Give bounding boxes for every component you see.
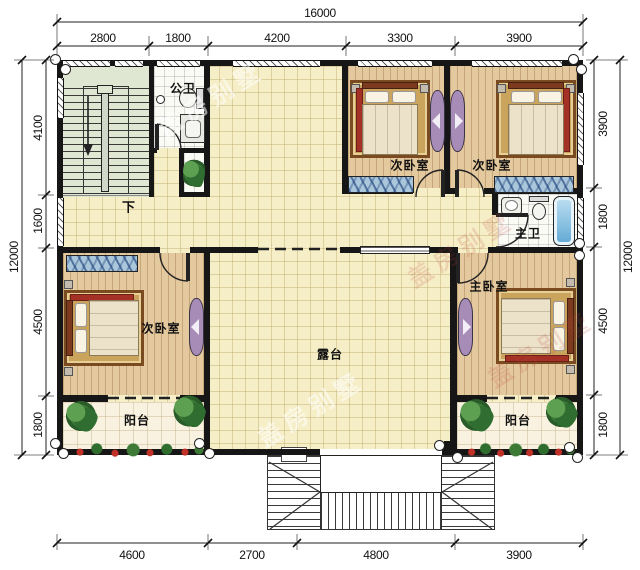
dimension-ticks [18, 18, 624, 547]
room-label-bedroom-top-right: 次卧室 [472, 157, 511, 174]
annotations-overlay [0, 0, 640, 570]
dim-right-seg: 3900 [596, 111, 610, 137]
dimension-lines [22, 22, 620, 543]
dim-left-seg: 4100 [31, 115, 45, 141]
room-label-bedroom-top-left: 次卧室 [390, 157, 429, 174]
dim-top-seg: 3300 [387, 31, 413, 45]
room-label-terrace: 露台 [317, 346, 343, 363]
dim-bottom-seg: 3900 [506, 548, 532, 562]
dim-bottom-seg: 4800 [363, 548, 389, 562]
floor-plan-canvas: 公卫 下 次卧室 次卧室 主卫 主卧室 次卧室 露台 阳台 阳台 16000 2… [0, 0, 640, 570]
room-label-bedroom-west: 次卧室 [141, 320, 180, 337]
dim-left-seg: 1800 [31, 412, 45, 438]
room-label-balcony-left: 阳台 [124, 412, 150, 429]
stair-down-arrow [83, 96, 93, 156]
dim-top-total: 16000 [304, 6, 336, 20]
dim-right-total: 12000 [621, 241, 635, 273]
dim-right-seg: 1800 [596, 204, 610, 230]
stairs-down-label: 下 [122, 197, 136, 216]
room-label-public-bath: 公卫 [170, 80, 196, 97]
dim-left-seg: 1600 [31, 208, 45, 234]
porch-diagonals [269, 462, 493, 529]
dim-left-total: 12000 [7, 241, 21, 273]
room-label-balcony-right: 阳台 [505, 412, 531, 429]
dim-top-seg: 1800 [165, 31, 191, 45]
room-label-master-bath: 主卫 [515, 225, 541, 242]
dim-top-seg: 4200 [264, 31, 290, 45]
dim-bottom-seg: 2700 [239, 548, 265, 562]
dim-right-seg: 1800 [596, 412, 610, 438]
dim-left-seg: 4500 [31, 309, 45, 335]
dim-right-seg: 4500 [596, 308, 610, 334]
dim-top-seg: 2800 [90, 31, 116, 45]
dim-top-seg: 3900 [506, 31, 532, 45]
door-swings [157, 124, 528, 283]
dim-bottom-seg: 4600 [119, 548, 145, 562]
dimension-extensions [14, 14, 628, 550]
room-label-master-bedroom: 主卧室 [469, 278, 508, 295]
